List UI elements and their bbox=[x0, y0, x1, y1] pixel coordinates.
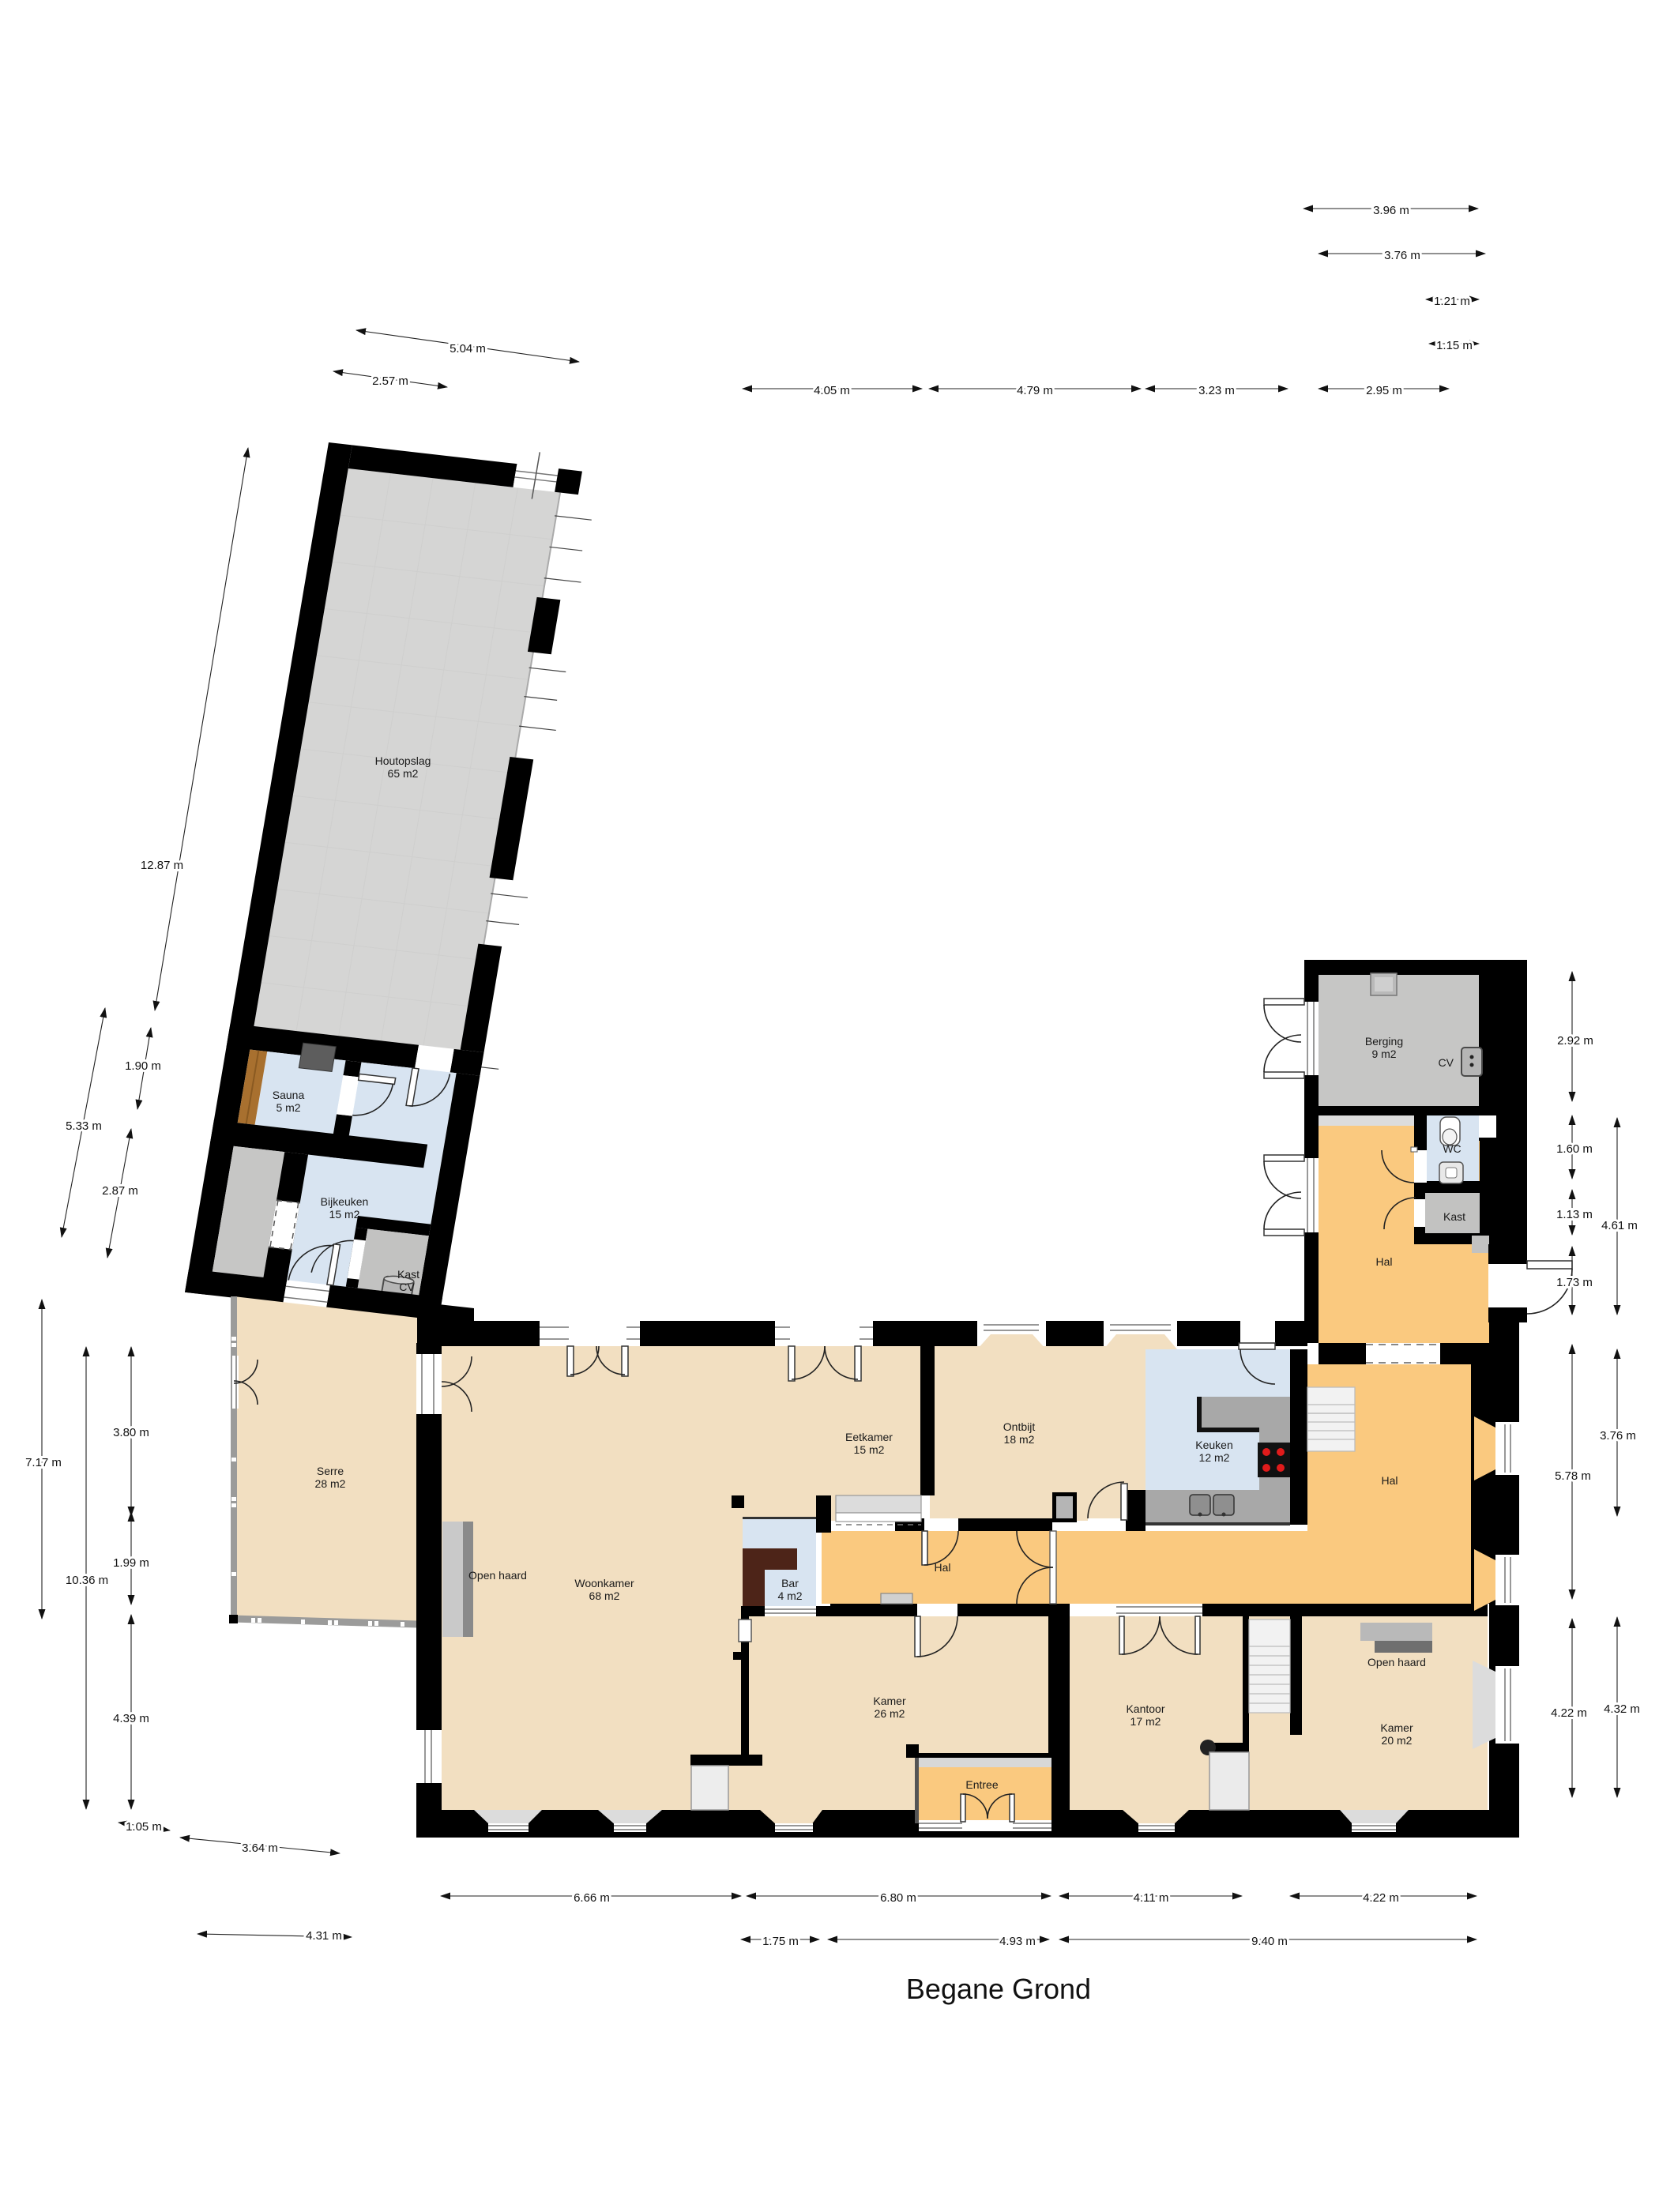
svg-text:1.75 m: 1.75 m bbox=[762, 1935, 799, 1948]
svg-text:Kantoor: Kantoor bbox=[1126, 1702, 1164, 1715]
svg-text:3.76 m: 3.76 m bbox=[1600, 1429, 1636, 1443]
svg-text:1.60 m: 1.60 m bbox=[1556, 1142, 1593, 1156]
svg-text:2.95 m: 2.95 m bbox=[1366, 384, 1402, 397]
svg-text:1.21 m: 1.21 m bbox=[1434, 295, 1470, 308]
svg-text:6.80 m: 6.80 m bbox=[880, 1891, 916, 1905]
svg-text:1.99 m: 1.99 m bbox=[113, 1556, 149, 1570]
svg-text:1.13 m: 1.13 m bbox=[1556, 1208, 1593, 1221]
svg-text:9.40 m: 9.40 m bbox=[1251, 1935, 1288, 1948]
svg-text:4.22 m: 4.22 m bbox=[1551, 1706, 1587, 1720]
svg-text:Begane Grond: Begane Grond bbox=[906, 1973, 1091, 2005]
svg-text:1.90 m: 1.90 m bbox=[125, 1059, 161, 1073]
svg-text:2.57 m: 2.57 m bbox=[372, 374, 408, 388]
svg-text:Berging: Berging bbox=[1365, 1035, 1403, 1048]
svg-text:Sauna: Sauna bbox=[273, 1089, 305, 1101]
svg-text:Keuken: Keuken bbox=[1195, 1439, 1232, 1451]
svg-text:3.76 m: 3.76 m bbox=[1384, 249, 1420, 262]
svg-text:28 m2: 28 m2 bbox=[315, 1477, 346, 1490]
svg-text:4.93 m: 4.93 m bbox=[999, 1935, 1036, 1948]
svg-text:Kamer: Kamer bbox=[873, 1695, 906, 1707]
svg-text:Kamer: Kamer bbox=[1380, 1721, 1413, 1734]
svg-text:3.23 m: 3.23 m bbox=[1198, 384, 1235, 397]
svg-text:4.31 m: 4.31 m bbox=[306, 1929, 342, 1943]
svg-text:4.39 m: 4.39 m bbox=[113, 1712, 149, 1725]
svg-text:2.92 m: 2.92 m bbox=[1557, 1034, 1593, 1048]
svg-text:Ontbijt: Ontbijt bbox=[1003, 1420, 1036, 1433]
svg-text:1.15 m: 1.15 m bbox=[1436, 339, 1473, 352]
svg-text:5 m2: 5 m2 bbox=[276, 1101, 300, 1114]
svg-text:5.78 m: 5.78 m bbox=[1555, 1469, 1591, 1483]
svg-text:Bijkeuken: Bijkeuken bbox=[321, 1195, 369, 1208]
svg-text:12 m2: 12 m2 bbox=[1199, 1451, 1230, 1464]
svg-text:5.04 m: 5.04 m bbox=[450, 342, 486, 355]
svg-text:3.80 m: 3.80 m bbox=[113, 1426, 149, 1439]
svg-text:Hal: Hal bbox=[934, 1561, 950, 1574]
svg-text:7.17 m: 7.17 m bbox=[25, 1456, 62, 1469]
svg-text:65 m2: 65 m2 bbox=[388, 767, 419, 780]
svg-text:10.36 m: 10.36 m bbox=[66, 1574, 108, 1587]
svg-text:20 m2: 20 m2 bbox=[1382, 1734, 1413, 1747]
svg-text:26 m2: 26 m2 bbox=[875, 1707, 905, 1720]
svg-text:5.33 m: 5.33 m bbox=[66, 1119, 102, 1133]
svg-text:68 m2: 68 m2 bbox=[589, 1589, 620, 1602]
svg-text:17 m2: 17 m2 bbox=[1130, 1715, 1161, 1728]
svg-text:CV: CV bbox=[399, 1281, 415, 1293]
svg-text:12.87 m: 12.87 m bbox=[141, 859, 183, 872]
svg-text:4.11 m: 4.11 m bbox=[1134, 1891, 1169, 1905]
svg-text:2.87 m: 2.87 m bbox=[102, 1184, 138, 1198]
svg-text:Hal: Hal bbox=[1375, 1255, 1392, 1268]
svg-text:CV: CV bbox=[1439, 1056, 1454, 1069]
svg-text:9 m2: 9 m2 bbox=[1371, 1048, 1396, 1060]
svg-text:1.05 m: 1.05 m bbox=[126, 1820, 162, 1834]
svg-text:3.64 m: 3.64 m bbox=[242, 1841, 278, 1855]
svg-text:Woonkamer: Woonkamer bbox=[574, 1577, 634, 1589]
svg-text:Kast: Kast bbox=[397, 1268, 419, 1281]
svg-text:3.96 m: 3.96 m bbox=[1373, 204, 1409, 217]
svg-text:Bar: Bar bbox=[781, 1577, 799, 1589]
svg-text:Entree: Entree bbox=[965, 1778, 998, 1791]
svg-text:15 m2: 15 m2 bbox=[329, 1208, 360, 1221]
svg-text:Hal: Hal bbox=[1381, 1474, 1398, 1487]
svg-text:1.73 m: 1.73 m bbox=[1556, 1276, 1593, 1289]
svg-text:4.61 m: 4.61 m bbox=[1601, 1219, 1638, 1232]
svg-text:18 m2: 18 m2 bbox=[1004, 1433, 1035, 1446]
svg-text:4.32 m: 4.32 m bbox=[1604, 1702, 1640, 1716]
svg-text:Eetkamer: Eetkamer bbox=[845, 1431, 893, 1443]
svg-text:Open haard: Open haard bbox=[1367, 1656, 1426, 1668]
svg-text:Houtopslag: Houtopslag bbox=[375, 754, 431, 767]
svg-text:WC: WC bbox=[1443, 1142, 1461, 1155]
svg-text:4 m2: 4 m2 bbox=[777, 1589, 802, 1602]
svg-text:Kast: Kast bbox=[1443, 1210, 1465, 1223]
svg-text:6.66 m: 6.66 m bbox=[574, 1891, 610, 1905]
svg-text:4.79 m: 4.79 m bbox=[1017, 384, 1053, 397]
svg-text:4.05 m: 4.05 m bbox=[814, 384, 850, 397]
svg-text:Open haard: Open haard bbox=[468, 1569, 527, 1582]
svg-text:Serre: Serre bbox=[317, 1465, 344, 1477]
svg-text:4.22 m: 4.22 m bbox=[1363, 1891, 1399, 1905]
svg-text:15 m2: 15 m2 bbox=[854, 1443, 885, 1456]
